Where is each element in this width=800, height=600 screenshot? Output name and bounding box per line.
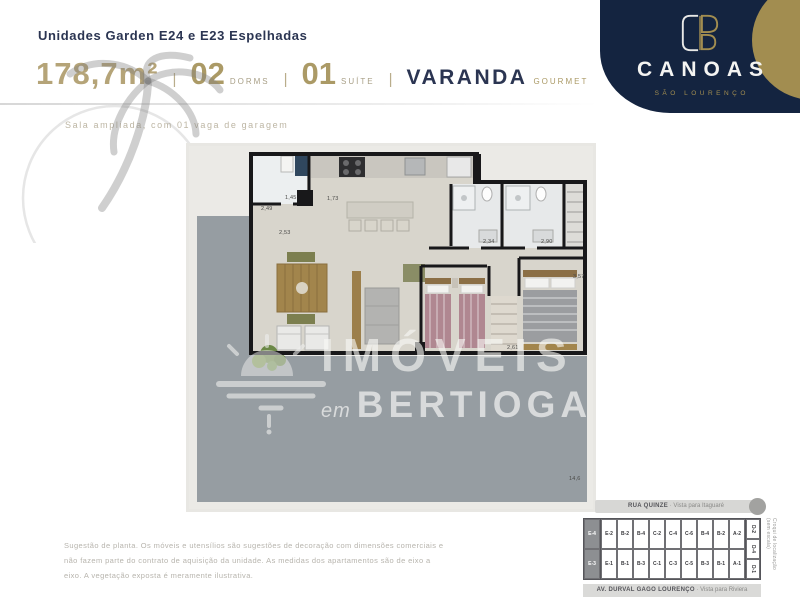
spec-separator: | — [284, 71, 288, 88]
dorms-label: DORMS — [230, 77, 270, 86]
page-title: Unidades Garden E24 e E23 Espelhadas — [38, 28, 307, 43]
unit-cell: C-2 — [649, 519, 665, 549]
unit-cell: B-1 — [713, 549, 729, 579]
dimension-label: 14,6 — [569, 476, 581, 482]
unit-cell: E-2 — [601, 519, 617, 549]
brand-block: CANOAS SÃO LOURENÇO — [600, 0, 800, 113]
dimension-label: 2,90 — [541, 239, 553, 245]
unit-cell: A-1 — [729, 549, 745, 579]
dimension-label: 2,34 — [483, 239, 495, 245]
dorms-count: 02 — [190, 56, 224, 92]
unit-cell: B-2 — [617, 519, 633, 549]
unit-cell: B-2 — [713, 519, 729, 549]
unit-cell: D-4 — [746, 539, 760, 559]
unit-cell: B-3 — [633, 549, 649, 579]
disclaimer-line: eixo. A vegetação exposta é meramente il… — [64, 568, 449, 583]
unit-cell: A-2 — [729, 519, 745, 549]
unit-cell: C-6 — [681, 519, 697, 549]
watermark-horizon-line — [0, 103, 598, 105]
unit-cell: B-4 — [697, 519, 713, 549]
varanda-label: VARANDA — [407, 66, 528, 90]
canoas-logo-icon — [678, 12, 722, 54]
unit-cell: D-1 — [746, 559, 760, 579]
unit-subtitle: Sala ampliada, com 01 vaga de garagem — [65, 120, 288, 130]
keyplan-top-street-bar: RUA QUINZE · Vista para Itaguaré — [595, 500, 757, 513]
floorplan-drawing — [189, 146, 593, 509]
unit-grid: E-2B-2B-4C-2C-4C-6B-4B-2A-2 E-1B-1B-3C-1… — [601, 519, 745, 579]
unit-cell: B-1 — [617, 549, 633, 579]
floorplan: 1,452,491,732,532,342,902,613,5714,6 IMÓ… — [186, 143, 596, 512]
highlighted-units: E-4E-3 — [584, 519, 601, 579]
keyplan: RUA QUINZE · Vista para Itaguaré E-4E-3 … — [583, 500, 795, 600]
spec-separator: | — [172, 71, 176, 88]
dimension-label: 2,53 — [279, 230, 291, 236]
specs-row: 178,7m² | 02 DORMS | 01 SUÍTE | VARANDA … — [36, 56, 588, 92]
disclaimer: Sugestão de planta. Os móveis e utensíli… — [64, 538, 449, 583]
unit-cell: C-1 — [649, 549, 665, 579]
dimension-label: 1,45 — [285, 195, 297, 201]
unit-row-bottom: E-1B-1B-3C-1C-3C-5B-3B-1A-1 — [601, 549, 745, 579]
dimension-label: 2,61 — [507, 345, 519, 351]
spec-separator: | — [389, 71, 393, 88]
unit-cell: C-5 — [681, 549, 697, 579]
keyplan-side-note: Croqui de localização (sem escala) — [765, 518, 777, 582]
unit-cell: E-1 — [601, 549, 617, 579]
unit-row-top: E-2B-2B-4C-2C-4C-6B-4B-2A-2 — [601, 519, 745, 549]
disclaimer-line: Sugestão de planta. Os móveis e utensíli… — [64, 538, 449, 553]
brand-gold-circle — [752, 0, 800, 100]
keyplan-bottom-street-bar: AV. DURVAL GAGO LOURENÇO · Vista para Ri… — [583, 584, 761, 597]
area-value: 178,7m² — [36, 56, 158, 92]
brand-location: SÃO LOURENÇO — [600, 90, 800, 97]
dimension-label: 3,57 — [573, 274, 585, 280]
brochure-page: Unidades Garden E24 e E23 Espelhadas 178… — [0, 0, 800, 600]
keyplan-building-diagram: E-4E-3 E-2B-2B-4C-2C-4C-6B-4B-2A-2 E-1B-… — [583, 518, 761, 580]
disclaimer-line: não fazem parte do contrato de aquisição… — [64, 553, 449, 568]
unit-cell: D-2 — [746, 519, 760, 539]
street-end-circle-icon — [749, 498, 766, 515]
unit-cell-highlighted: E-4 — [584, 519, 600, 549]
brand-name: CANOAS — [600, 58, 800, 82]
unit-column-right: D-2D-4D-1 — [745, 519, 760, 579]
unit-cell: B-3 — [697, 549, 713, 579]
dimension-label: 1,73 — [327, 196, 339, 202]
unit-cell: C-3 — [665, 549, 681, 579]
unit-cell-highlighted: E-3 — [584, 549, 600, 579]
unit-cell: C-4 — [665, 519, 681, 549]
suite-count: 01 — [302, 56, 336, 92]
gourmet-label: GOURMET — [533, 77, 588, 86]
suite-label: SUÍTE — [341, 77, 375, 86]
dimension-label: 2,49 — [261, 206, 273, 212]
unit-cell: B-4 — [633, 519, 649, 549]
